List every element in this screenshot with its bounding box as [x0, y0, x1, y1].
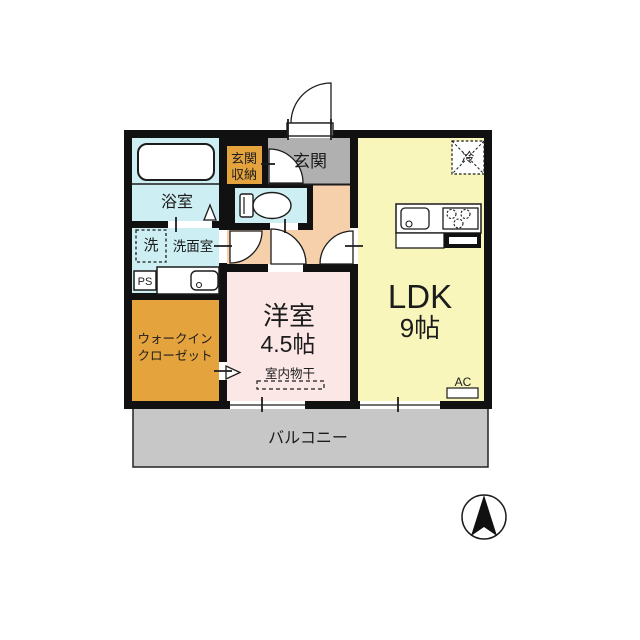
label-storage-line1: 玄関: [231, 151, 257, 166]
label-balcony: バルコニー: [268, 430, 348, 447]
label-ps: PS: [138, 276, 153, 288]
front-door-leaf: [287, 123, 333, 136]
bathtub-icon: [138, 144, 214, 180]
label-ldk: LDK: [388, 278, 452, 315]
bathroom-door-opening: [168, 221, 212, 228]
wall-storage-right: [262, 138, 268, 184]
label-washroom: 洗面室: [173, 238, 214, 254]
label-drying: 室内物干: [265, 366, 315, 381]
kitchen-cabinet: [396, 233, 444, 248]
label-western: 洋室: [263, 301, 315, 331]
ac-outlet-box: [447, 388, 478, 398]
floorplan-drawing: 浴室 洗 洗面室 PS ウォークイン クローゼット 玄関 収納 玄関 冷 LDK…: [0, 0, 640, 640]
vanity-sink-icon: [157, 267, 219, 294]
toilet-icon: [240, 193, 291, 219]
label-washer: 洗: [143, 237, 158, 254]
western-door-opening: [268, 264, 303, 272]
label-western-size: 4.5帖: [261, 331, 316, 357]
stove-icon: [443, 208, 478, 229]
window-western: [230, 401, 305, 409]
room-ldk: [358, 138, 484, 401]
label-fridge: 冷: [461, 150, 474, 165]
label-storage-line2: 収納: [231, 167, 257, 182]
kitchen-counter: [396, 204, 481, 248]
label-entrance: 玄関: [293, 152, 327, 171]
label-ac: AC: [455, 375, 472, 389]
label-wic-line2: クローゼット: [137, 349, 212, 363]
kitchen-base-stripe: [449, 237, 477, 244]
label-bathroom: 浴室: [161, 193, 193, 211]
label-ldk-size: 9帖: [400, 313, 440, 343]
floorplan-page: 浴室 洗 洗面室 PS ウォークイン クローゼット 玄関 収納 玄関 冷 LDK…: [0, 0, 640, 640]
kitchen-sink-icon: [401, 208, 429, 229]
window-ldk: [360, 401, 440, 409]
label-wic-line1: ウォークイン: [137, 332, 212, 346]
compass: [462, 495, 506, 539]
